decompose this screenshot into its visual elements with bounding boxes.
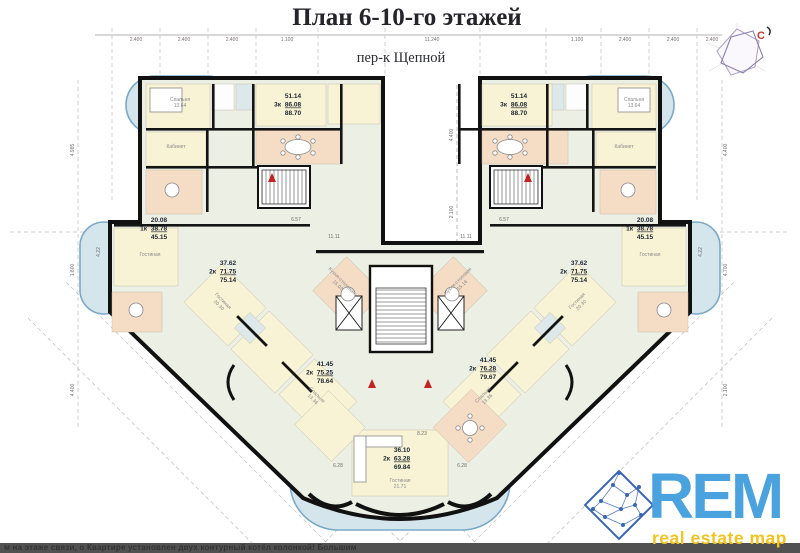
round-table-icon <box>463 421 478 436</box>
sofa-icon <box>366 436 402 447</box>
svg-text:86.08: 86.08 <box>511 102 528 109</box>
svg-text:45.15: 45.15 <box>151 234 168 241</box>
svg-text:37.62: 37.62 <box>571 260 588 267</box>
svg-text:2к: 2к <box>560 269 568 276</box>
svg-text:2.400: 2.400 <box>130 37 143 43</box>
svg-text:4.22: 4.22 <box>698 247 704 257</box>
dining-table-icon <box>497 140 523 155</box>
svg-text:79.67: 79.67 <box>480 374 497 381</box>
svg-text:1.100: 1.100 <box>571 37 584 43</box>
page-title: План 6-10-го этажей <box>292 4 521 31</box>
svg-text:41.45: 41.45 <box>480 357 497 364</box>
svg-text:71.75: 71.75 <box>220 269 237 276</box>
sofa-icon <box>354 436 366 482</box>
rem-logo-tagline: real estate map <box>652 528 787 549</box>
svg-text:1к: 1к <box>140 226 148 233</box>
svg-text:2.100: 2.100 <box>723 384 729 397</box>
round-table-icon <box>621 183 635 197</box>
page-subtitle: пер-к Щепной <box>357 50 446 66</box>
svg-text:36.10: 36.10 <box>394 447 411 454</box>
round-table-icon <box>129 303 143 317</box>
svg-text:2к: 2к <box>209 269 217 276</box>
svg-text:4.400: 4.400 <box>723 144 729 157</box>
svg-text:6.28: 6.28 <box>457 463 467 469</box>
svg-text:88.70: 88.70 <box>511 110 528 117</box>
svg-text:41.45: 41.45 <box>317 361 334 368</box>
dining-table-icon <box>285 140 311 155</box>
svg-text:4.700: 4.700 <box>723 264 729 277</box>
svg-text:63.28: 63.28 <box>394 456 411 463</box>
svg-text:6.57: 6.57 <box>291 217 301 223</box>
svg-text:20.08: 20.08 <box>637 217 654 224</box>
svg-text:2к: 2к <box>469 366 477 373</box>
floor-plan-page: 51.14 3к 86.08 88.70 51.14 3к 86.08 88.7… <box>0 0 800 553</box>
svg-text:1к: 1к <box>626 226 634 233</box>
svg-text:45.15: 45.15 <box>637 234 654 241</box>
svg-text:76.28: 76.28 <box>480 366 497 373</box>
compass-icon: С <box>707 23 770 75</box>
svg-text:71.75: 71.75 <box>571 269 588 276</box>
svg-text:37.62: 37.62 <box>220 260 237 267</box>
svg-text:2.400: 2.400 <box>226 37 239 43</box>
svg-text:1.800: 1.800 <box>70 264 76 277</box>
svg-text:11.11: 11.11 <box>328 234 340 240</box>
svg-text:Кабинет: Кабинет <box>166 144 186 150</box>
footer-text: м на этаже связи, о Квартире установлен … <box>4 543 357 552</box>
svg-text:2к: 2к <box>383 456 391 463</box>
svg-text:86.08: 86.08 <box>285 102 302 109</box>
svg-text:4.400: 4.400 <box>70 384 76 397</box>
svg-text:4.985: 4.985 <box>70 144 76 157</box>
svg-text:11.240: 11.240 <box>425 37 440 43</box>
svg-text:8.23: 8.23 <box>417 431 427 437</box>
svg-text:38.78: 38.78 <box>151 226 168 233</box>
svg-text:2.100: 2.100 <box>449 206 455 219</box>
svg-text:2.400: 2.400 <box>178 37 191 43</box>
svg-text:6.28: 6.28 <box>333 463 343 469</box>
rem-logo-text: REM <box>648 464 781 528</box>
svg-text:20.08: 20.08 <box>151 217 168 224</box>
svg-text:4.400: 4.400 <box>449 129 455 142</box>
svg-text:38.78: 38.78 <box>637 226 654 233</box>
svg-text:13.64: 13.64 <box>628 103 641 109</box>
svg-text:51.14: 51.14 <box>511 93 528 100</box>
svg-text:2.400: 2.400 <box>619 37 632 43</box>
svg-text:3к: 3к <box>500 102 508 109</box>
svg-text:2к: 2к <box>306 370 314 377</box>
svg-text:С: С <box>757 30 765 42</box>
svg-text:13.64: 13.64 <box>174 103 187 109</box>
svg-text:Гостиная: Гостиная <box>640 252 661 258</box>
svg-text:3к: 3к <box>274 102 282 109</box>
svg-text:2.400: 2.400 <box>706 37 719 43</box>
svg-text:75.14: 75.14 <box>571 277 588 284</box>
svg-text:21.71: 21.71 <box>394 484 407 490</box>
svg-text:Гостиная: Гостиная <box>140 252 161 258</box>
svg-text:Кабинет: Кабинет <box>614 144 634 150</box>
rem-logo: REM real estate map <box>584 462 800 553</box>
round-table-icon <box>165 183 179 197</box>
stairs-right-icon <box>494 170 538 204</box>
svg-text:1.100: 1.100 <box>281 37 294 43</box>
svg-text:6.57: 6.57 <box>499 217 509 223</box>
svg-text:78.64: 78.64 <box>317 378 334 385</box>
rem-logo-network-icon <box>584 468 654 542</box>
svg-text:69.84: 69.84 <box>394 464 411 471</box>
svg-text:4.22: 4.22 <box>96 247 102 257</box>
stairs-left-icon <box>262 170 306 204</box>
svg-text:88.70: 88.70 <box>285 110 302 117</box>
round-table-icon <box>657 303 671 317</box>
north-arrow-icon <box>767 27 770 35</box>
svg-text:75.14: 75.14 <box>220 277 237 284</box>
stairs-center-icon <box>376 288 426 344</box>
svg-text:11.11: 11.11 <box>460 234 472 240</box>
svg-text:51.14: 51.14 <box>285 93 302 100</box>
svg-text:2.400: 2.400 <box>667 37 680 43</box>
svg-text:75.25: 75.25 <box>317 370 334 377</box>
